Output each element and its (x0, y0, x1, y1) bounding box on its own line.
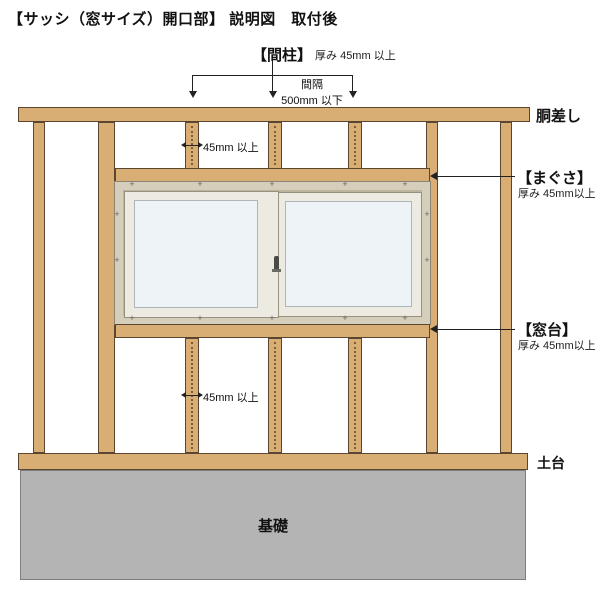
nail-line-icon (354, 342, 356, 449)
stud-callout-riser-line (272, 61, 273, 75)
stud-width-note-bottom: 45mm 以上 (203, 389, 259, 405)
nail-mark: + (113, 256, 121, 265)
girder-beam (18, 107, 530, 122)
stud-arrow-head-1-icon (189, 91, 197, 98)
upper-stud-3 (348, 122, 362, 169)
foundation-block: 基礎 (20, 470, 526, 580)
girder-label: 胴差し (536, 105, 581, 126)
nail-line-icon (274, 342, 276, 449)
nail-mark: + (423, 256, 431, 265)
edge-stud-left (33, 122, 45, 453)
nail-mark: + (341, 314, 349, 323)
stud-callout-note: 厚み 45mm 以上 (315, 47, 396, 63)
stud-spacing-note: 間隔 500mm 以下 (270, 76, 354, 108)
foundation-label: 基礎 (258, 515, 288, 536)
window-sash-right[interactable] (272, 193, 421, 316)
pillar-left (98, 122, 115, 453)
nail-line-icon (354, 126, 356, 165)
sill-callout-line (437, 329, 515, 330)
nail-mark: + (268, 180, 276, 189)
nail-mark: + (128, 314, 136, 323)
stud-arrow-stem-1 (192, 75, 193, 91)
lower-stud-3 (348, 338, 362, 453)
sill-note: 厚み 45mm以上 (518, 337, 596, 353)
stud-spacing-line2: 500mm 以下 (270, 92, 354, 108)
nail-mark: + (196, 180, 204, 189)
lower-stud-2 (268, 338, 282, 453)
upper-stud-2 (268, 122, 282, 169)
diagram-canvas: 【サッシ（窓サイズ）開口部】 説明図 取付後 【間柱】 厚み 45mm 以上 間… (0, 0, 600, 600)
window-sash-left[interactable] (125, 192, 278, 317)
nail-mark: + (401, 314, 409, 323)
sill-callout-arrow-icon (430, 325, 437, 333)
diagram-title: 【サッシ（窓サイズ）開口部】 説明図 取付後 (8, 8, 338, 29)
nail-mark: + (196, 314, 204, 323)
nail-mark: + (128, 180, 136, 189)
nail-mark: + (341, 180, 349, 189)
mudsill-label: 土台 (537, 453, 565, 473)
mudsill-beam (18, 453, 528, 470)
nail-mark: + (423, 210, 431, 219)
stud-width-arrow-top-left-icon (181, 142, 186, 148)
window-sill-beam (115, 324, 430, 338)
stud-callout: 【間柱】 厚み 45mm 以上 (252, 44, 396, 65)
window-sash-unit (114, 181, 431, 325)
edge-stud-right (500, 122, 512, 453)
stud-callout-label: 【間柱】 (252, 44, 312, 65)
lintel-callout-line (437, 176, 515, 177)
lintel-note: 厚み 45mm以上 (518, 185, 596, 201)
nail-mark: + (113, 210, 121, 219)
crescent-lock-base (272, 269, 281, 272)
nail-line-icon (274, 126, 276, 165)
nail-mark: + (401, 180, 409, 189)
nail-mark: + (268, 314, 276, 323)
stud-width-note-top: 45mm 以上 (203, 139, 259, 155)
stud-width-arrow-bottom-left-icon (181, 392, 186, 398)
stud-spacing-line1: 間隔 (270, 76, 354, 92)
lintel-callout-arrow-icon (430, 172, 437, 180)
